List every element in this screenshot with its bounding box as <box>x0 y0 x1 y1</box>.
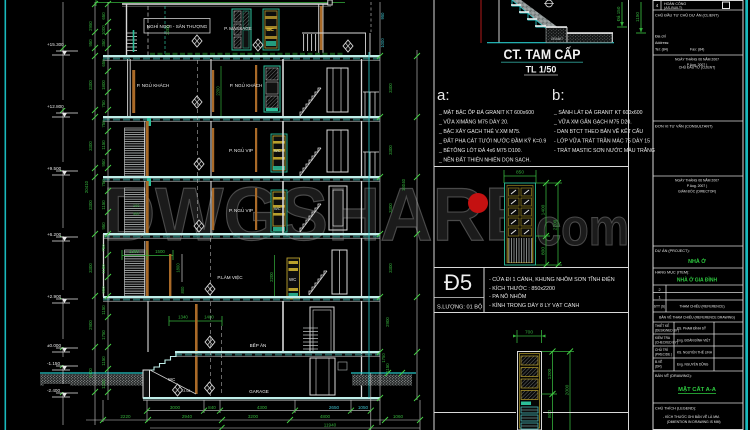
svg-text:1150: 1150 <box>101 356 106 366</box>
svg-text:_ MẶT BẬC ỐP ĐÁ GRANIT KT 600x: _ MẶT BẬC ỐP ĐÁ GRANIT KT 600x600 <box>438 109 534 116</box>
svg-text:3000: 3000 <box>170 405 181 410</box>
svg-text:-2.400: -2.400 <box>47 388 60 393</box>
svg-text:_ ĐẤT PHA CÁT TƯỚI NƯỚC ĐẦM K: _ ĐẤT PHA CÁT TƯỚI NƯỚC ĐẦM KỸ K=0.9 <box>438 138 546 145</box>
svg-text:MẶT CẮT A-A: MẶT CẮT A-A <box>678 385 717 393</box>
svg-text:GARAGE: GARAGE <box>249 389 269 394</box>
svg-text:1000: 1000 <box>380 38 385 48</box>
svg-text:1400: 1400 <box>204 315 214 320</box>
svg-text:- KÍCH THƯỚC GHI BẢN VẼ LÀ MM.: - KÍCH THƯỚC GHI BẢN VẼ LÀ MM. <box>663 414 720 419</box>
svg-text:+2.900: +2.900 <box>47 294 62 299</box>
svg-text:NGÀY THÁNG 06 NĂM 2007: NGÀY THÁNG 06 NĂM 2007 <box>675 58 719 62</box>
svg-text:800: 800 <box>541 247 547 255</box>
svg-text:1500: 1500 <box>155 249 165 254</box>
svg-text:11940: 11940 <box>324 423 337 428</box>
svg-text:b:: b: <box>552 87 565 104</box>
svg-text:2200: 2200 <box>216 86 221 96</box>
svg-text:(CHECKED BY): (CHECKED BY) <box>655 341 678 345</box>
svg-text:2200: 2200 <box>553 219 559 230</box>
svg-text:GIÁM ĐỐC (DIRECTOR): GIÁM ĐỐC (DIRECTOR) <box>678 189 716 194</box>
svg-text:com: com <box>536 199 629 257</box>
svg-text:P. NGỦ KHÁCH: P. NGỦ KHÁCH <box>230 82 263 88</box>
svg-text:_ VỮA XM GẮN GẠCH M75 D20.: _ VỮA XM GẮN GẠCH M75 D20. <box>553 118 632 126</box>
svg-text:P. NGỦ VIP: P. NGỦ VIP <box>229 147 253 153</box>
svg-text:a:: a: <box>437 87 450 104</box>
svg-text:BẢN VẼ THAM CHIẾU (REFERENCE D: BẢN VẼ THAM CHIẾU (REFERENCE DRAWING) <box>659 315 735 320</box>
svg-text:NGHỈ NGƠI - SÂN THƯỢNG: NGHỈ NGƠI - SÂN THƯỢNG <box>147 23 208 29</box>
svg-text:KS. NGUYỄN THẾ LINH: KS. NGUYỄN THẾ LINH <box>677 350 713 355</box>
svg-text:16040: 16040 <box>401 178 406 191</box>
svg-text:1: 1 <box>658 295 660 299</box>
svg-text:3300: 3300 <box>388 83 393 93</box>
svg-text:BẢN VẼ (DRAWING):: BẢN VẼ (DRAWING): <box>655 373 692 378</box>
svg-text:(DESIGNED BY): (DESIGNED BY) <box>655 329 679 333</box>
svg-text:- PA NÔ NHÔM: - PA NÔ NHÔM <box>489 293 527 300</box>
svg-text:Đ5: Đ5 <box>444 270 472 295</box>
svg-text:NHÀ Ở: NHÀ Ở <box>688 258 706 265</box>
svg-text:1150: 1150 <box>385 363 390 373</box>
svg-text:STT (S): STT (S) <box>654 305 665 309</box>
svg-text:700: 700 <box>525 330 533 336</box>
svg-text:S.LƯỢNG: 01 BỘ: S.LƯỢNG: 01 BỘ <box>437 304 483 311</box>
svg-text:2940: 2940 <box>182 414 193 419</box>
svg-text:Eng. ĐOÀN ĐÌNH VIỆT: Eng. ĐOÀN ĐÌNH VIỆT <box>677 338 710 343</box>
svg-text:TL 1/50: TL 1/50 <box>526 65 557 75</box>
svg-text:1050: 1050 <box>358 405 369 410</box>
svg-text:800: 800 <box>547 410 553 418</box>
svg-text:+12.800: +12.800 <box>47 104 64 109</box>
svg-text:1250: 1250 <box>101 379 106 389</box>
svg-text:P. NGỦ VIP: P. NGỦ VIP <box>229 207 253 213</box>
svg-text:B.VẼ: B.VẼ <box>655 359 662 364</box>
svg-text:WC: WC <box>274 148 281 153</box>
svg-text:1750: 1750 <box>101 330 106 340</box>
svg-text:2000: 2000 <box>565 384 571 395</box>
svg-text:2: 2 <box>658 288 660 292</box>
svg-text:CT. TAM CẤP: CT. TAM CẤP <box>504 47 581 62</box>
svg-text:P Aug. 2007 ): P Aug. 2007 ) <box>687 184 708 188</box>
svg-text:P.LÀM VIỆC: P.LÀM VIỆC <box>217 273 243 280</box>
svg-text:Address:: Address: <box>655 41 669 45</box>
svg-text:_ SẢNH LÁT ĐÁ GRANIT KT 600x60: _ SẢNH LÁT ĐÁ GRANIT KT 600x600 <box>553 109 643 116</box>
svg-text:750: 750 <box>101 100 106 108</box>
svg-text:±0.000: ±0.000 <box>47 343 61 348</box>
svg-text:_ VỮA XIMĂNG M75 DÀY 20.: _ VỮA XIMĂNG M75 DÀY 20. <box>438 119 509 126</box>
svg-text:2950: 2950 <box>88 21 93 31</box>
svg-text:3300: 3300 <box>88 141 93 151</box>
svg-text:1800: 1800 <box>101 80 106 90</box>
svg-text:300: 300 <box>133 212 139 216</box>
svg-text:- LỚP VỮA TRÁT TRẦN MÁC 75 DÀY: - LỚP VỮA TRÁT TRẦN MÁC 75 DÀY 15 <box>554 138 650 145</box>
svg-text:(DR): (DR) <box>655 365 662 369</box>
svg-text:350: 350 <box>101 39 106 47</box>
svg-text:2650: 2650 <box>329 405 340 410</box>
svg-text:DỰ ÁN (PROJECT):: DỰ ÁN (PROJECT): <box>655 249 690 253</box>
svg-text:ĐƠN VỊ TƯ VẤN (CONSULTANT): ĐƠN VỊ TƯ VẤN (CONSULTANT) <box>655 125 713 129</box>
svg-text:1150: 1150 <box>101 264 106 274</box>
svg-text:KIỂM TRA: KIỂM TRA <box>655 335 671 340</box>
svg-text:950: 950 <box>101 159 106 167</box>
svg-text:3300: 3300 <box>388 203 393 213</box>
svg-text:CHỦ ĐẦU TƯ CHỦ DỰ ÁN (CLIENT): CHỦ ĐẦU TƯ CHỦ DỰ ÁN (CLIENT) <box>655 13 719 18</box>
svg-text:- KÍCH THƯỚC : 850x2200: - KÍCH THƯỚC : 850x2200 <box>489 285 555 292</box>
svg-text:Eng. NGUYỄN DŨNG: Eng. NGUYỄN DŨNG <box>677 362 709 367</box>
svg-text:Fax: (84): Fax: (84) <box>690 48 704 52</box>
svg-text:3300: 3300 <box>88 263 93 273</box>
svg-text:P. NGỦ KHÁCH: P. NGỦ KHÁCH <box>137 82 170 88</box>
svg-text:-3.08: -3.08 <box>182 389 190 393</box>
svg-text:WC: WC <box>289 277 296 282</box>
svg-text:WC: WC <box>274 206 281 211</box>
svg-text:3300: 3300 <box>388 145 393 155</box>
svg-text:950: 950 <box>101 222 106 230</box>
svg-text:1150: 1150 <box>635 12 640 22</box>
svg-text:1340: 1340 <box>178 315 188 320</box>
svg-text:1800: 1800 <box>176 263 181 273</box>
svg-text:800: 800 <box>180 286 185 294</box>
svg-text:1150: 1150 <box>101 200 106 210</box>
svg-text:+6.200: +6.200 <box>47 232 62 237</box>
svg-text:1150: 1150 <box>101 140 106 150</box>
svg-text:-1.150: -1.150 <box>47 361 60 366</box>
svg-text:1150: 1150 <box>101 305 106 315</box>
svg-text:HẠNG MỤC (ITEM):: HẠNG MỤC (ITEM): <box>655 271 689 275</box>
svg-text:950: 950 <box>101 286 106 294</box>
svg-text:3300: 3300 <box>88 200 93 210</box>
svg-text:4800: 4800 <box>320 414 331 419</box>
svg-text:650: 650 <box>101 59 106 67</box>
svg-text:KS. PHẠM ĐÌNH SỸ: KS. PHẠM ĐÌNH SỸ <box>677 326 707 331</box>
svg-text:100: 100 <box>133 204 139 208</box>
svg-text:(PRECIDE ): (PRECIDE ) <box>655 353 672 357</box>
svg-text:2200: 2200 <box>269 272 274 282</box>
svg-text:_ BÊTÔNG LÓT ĐÁ 4x6 M75 D100.: _ BÊTÔNG LÓT ĐÁ 4x6 M75 D100. <box>438 146 522 154</box>
svg-text:3300: 3300 <box>388 263 393 273</box>
svg-text:2220: 2220 <box>120 414 131 419</box>
svg-text:P. MASSAGE: P. MASSAGE <box>224 26 252 31</box>
svg-text:CHỦ ĐẦU TƯ (CLIENT): CHỦ ĐẦU TƯ (CLIENT) <box>679 65 716 70</box>
svg-text:CHÚ THÍCH (LEGEND):: CHÚ THÍCH (LEGEND): <box>655 406 696 411</box>
svg-text:1060: 1060 <box>393 414 404 419</box>
svg-text:Tel: (84): Tel: (84) <box>655 48 668 52</box>
svg-text:650: 650 <box>101 12 106 20</box>
svg-text:1200: 1200 <box>547 368 553 379</box>
svg-text:- DAN BTCT THEO BẢN VẼ KẾT CẤU: - DAN BTCT THEO BẢN VẼ KẾT CẤU <box>554 128 643 135</box>
svg-text:950: 950 <box>88 39 93 47</box>
svg-text:Đá 150: Đá 150 <box>616 6 621 21</box>
svg-text:840: 840 <box>208 405 216 410</box>
svg-text:750: 750 <box>101 179 106 187</box>
svg-text:GRANIT: GRANIT <box>551 37 563 41</box>
svg-text:2900: 2900 <box>88 320 93 330</box>
svg-text:1300: 1300 <box>129 249 139 254</box>
svg-text:WC: WC <box>168 377 175 382</box>
svg-text:1400: 1400 <box>541 204 547 215</box>
svg-text:850: 850 <box>516 170 524 176</box>
svg-text:750: 750 <box>101 244 106 252</box>
svg-text:20410: 20410 <box>84 180 89 193</box>
svg-text:WC: WC <box>266 27 273 32</box>
svg-text:3300: 3300 <box>88 80 93 90</box>
svg-text:- TRÁT MASTIC SƠN NƯỚC MÀU TRẮ: - TRÁT MASTIC SƠN NƯỚC MÀU TRẮNG <box>554 146 655 154</box>
svg-text:Địa chỉ: Địa chỉ <box>655 35 666 39</box>
svg-text:THIẾT KẾ: THIẾT KẾ <box>655 323 669 328</box>
svg-text:THAM CHIẾU (REFERENCE): THAM CHIẾU (REFERENCE) <box>679 304 724 309</box>
svg-text:+15.300: +15.300 <box>47 42 64 47</box>
svg-text:BẾP ĂN: BẾP ĂN <box>250 342 267 348</box>
svg-text:1000: 1000 <box>101 25 106 35</box>
svg-text:(DIMENTION IN DRAWING IS MM): (DIMENTION IN DRAWING IS MM) <box>667 420 721 424</box>
svg-text:NHÀ Ở GIA ĐÌNH: NHÀ Ở GIA ĐÌNH <box>677 276 718 284</box>
svg-text:DWGSHARE: DWGSHARE <box>103 172 533 256</box>
svg-text:(AS-BUILT): (AS-BUILT) <box>664 6 682 10</box>
svg-text:CHỦ TRÌ: CHỦ TRÌ <box>655 347 668 352</box>
svg-text:- KÍNH TRONG DÀY 8 LY VẠT CẠNH: - KÍNH TRONG DÀY 8 LY VẠT CẠNH <box>489 302 579 309</box>
svg-text:3200: 3200 <box>248 414 259 419</box>
svg-text:4300: 4300 <box>257 405 268 410</box>
svg-text:_ BẬC XÂY GẠCH THẺ V.XM M75.: _ BẬC XÂY GẠCH THẺ V.XM M75. <box>438 128 521 135</box>
svg-text:950: 950 <box>380 12 385 20</box>
svg-text:750: 750 <box>101 120 106 128</box>
svg-text:+9.500: +9.500 <box>47 166 62 171</box>
svg-text:2400: 2400 <box>88 368 93 378</box>
svg-text:NGÀY THÁNG 06 NĂM 2007: NGÀY THÁNG 06 NĂM 2007 <box>675 179 719 183</box>
svg-text:1750: 1750 <box>381 353 386 363</box>
svg-text:_ NỀN ĐẤT THIÊN NHIÊN DỌN SẠCH: _ NỀN ĐẤT THIÊN NHIÊN DỌN SẠCH. <box>438 156 531 164</box>
svg-text:- CỬA ĐI 1 CÁNH, KHUNG NHÔM SƠ: - CỬA ĐI 1 CÁNH, KHUNG NHÔM SƠN TĨNH ĐIỆ… <box>489 275 615 283</box>
svg-text:2900: 2900 <box>385 317 390 327</box>
